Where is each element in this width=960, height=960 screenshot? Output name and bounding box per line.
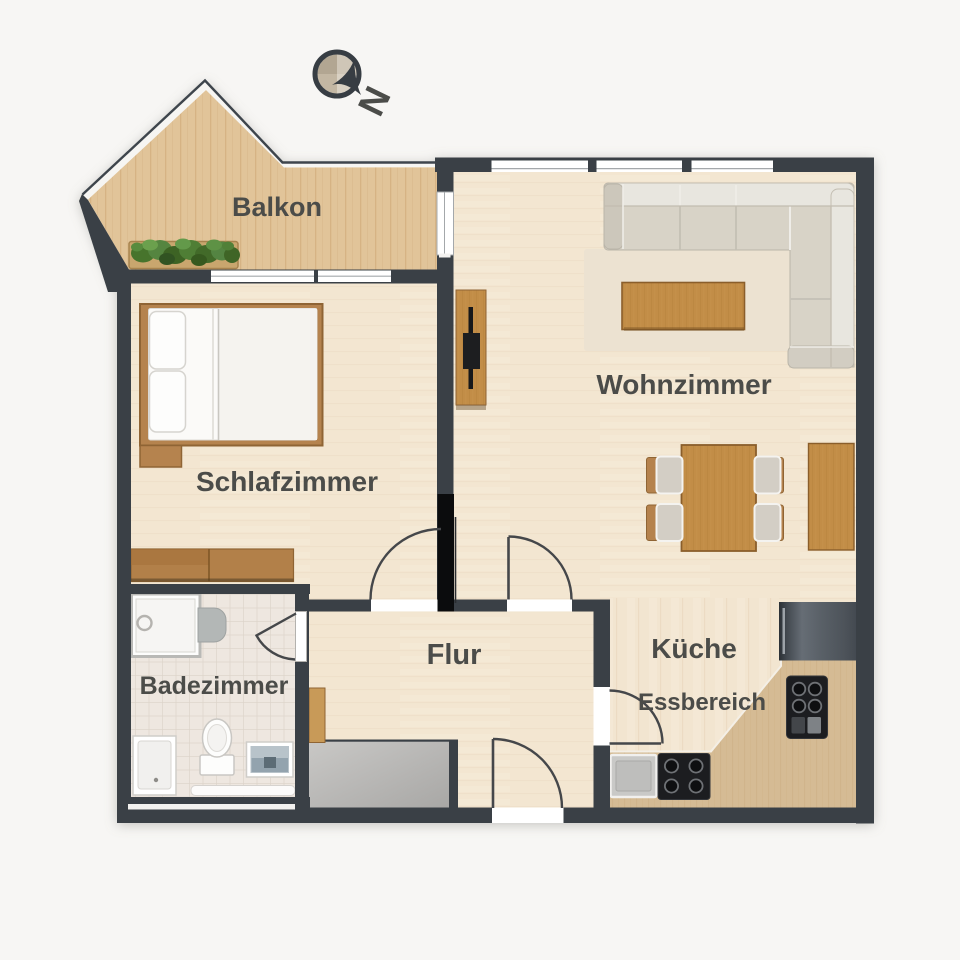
- svg-text:Essbereich: Essbereich: [638, 689, 766, 716]
- svg-text:Schlafzimmer: Schlafzimmer: [196, 466, 378, 497]
- svg-text:Badezimmer: Badezimmer: [140, 672, 289, 700]
- svg-text:Wohnzimmer: Wohnzimmer: [596, 369, 771, 400]
- svg-text:Flur: Flur: [427, 639, 482, 671]
- svg-text:Balkon: Balkon: [232, 192, 322, 222]
- svg-text:Küche: Küche: [651, 633, 737, 664]
